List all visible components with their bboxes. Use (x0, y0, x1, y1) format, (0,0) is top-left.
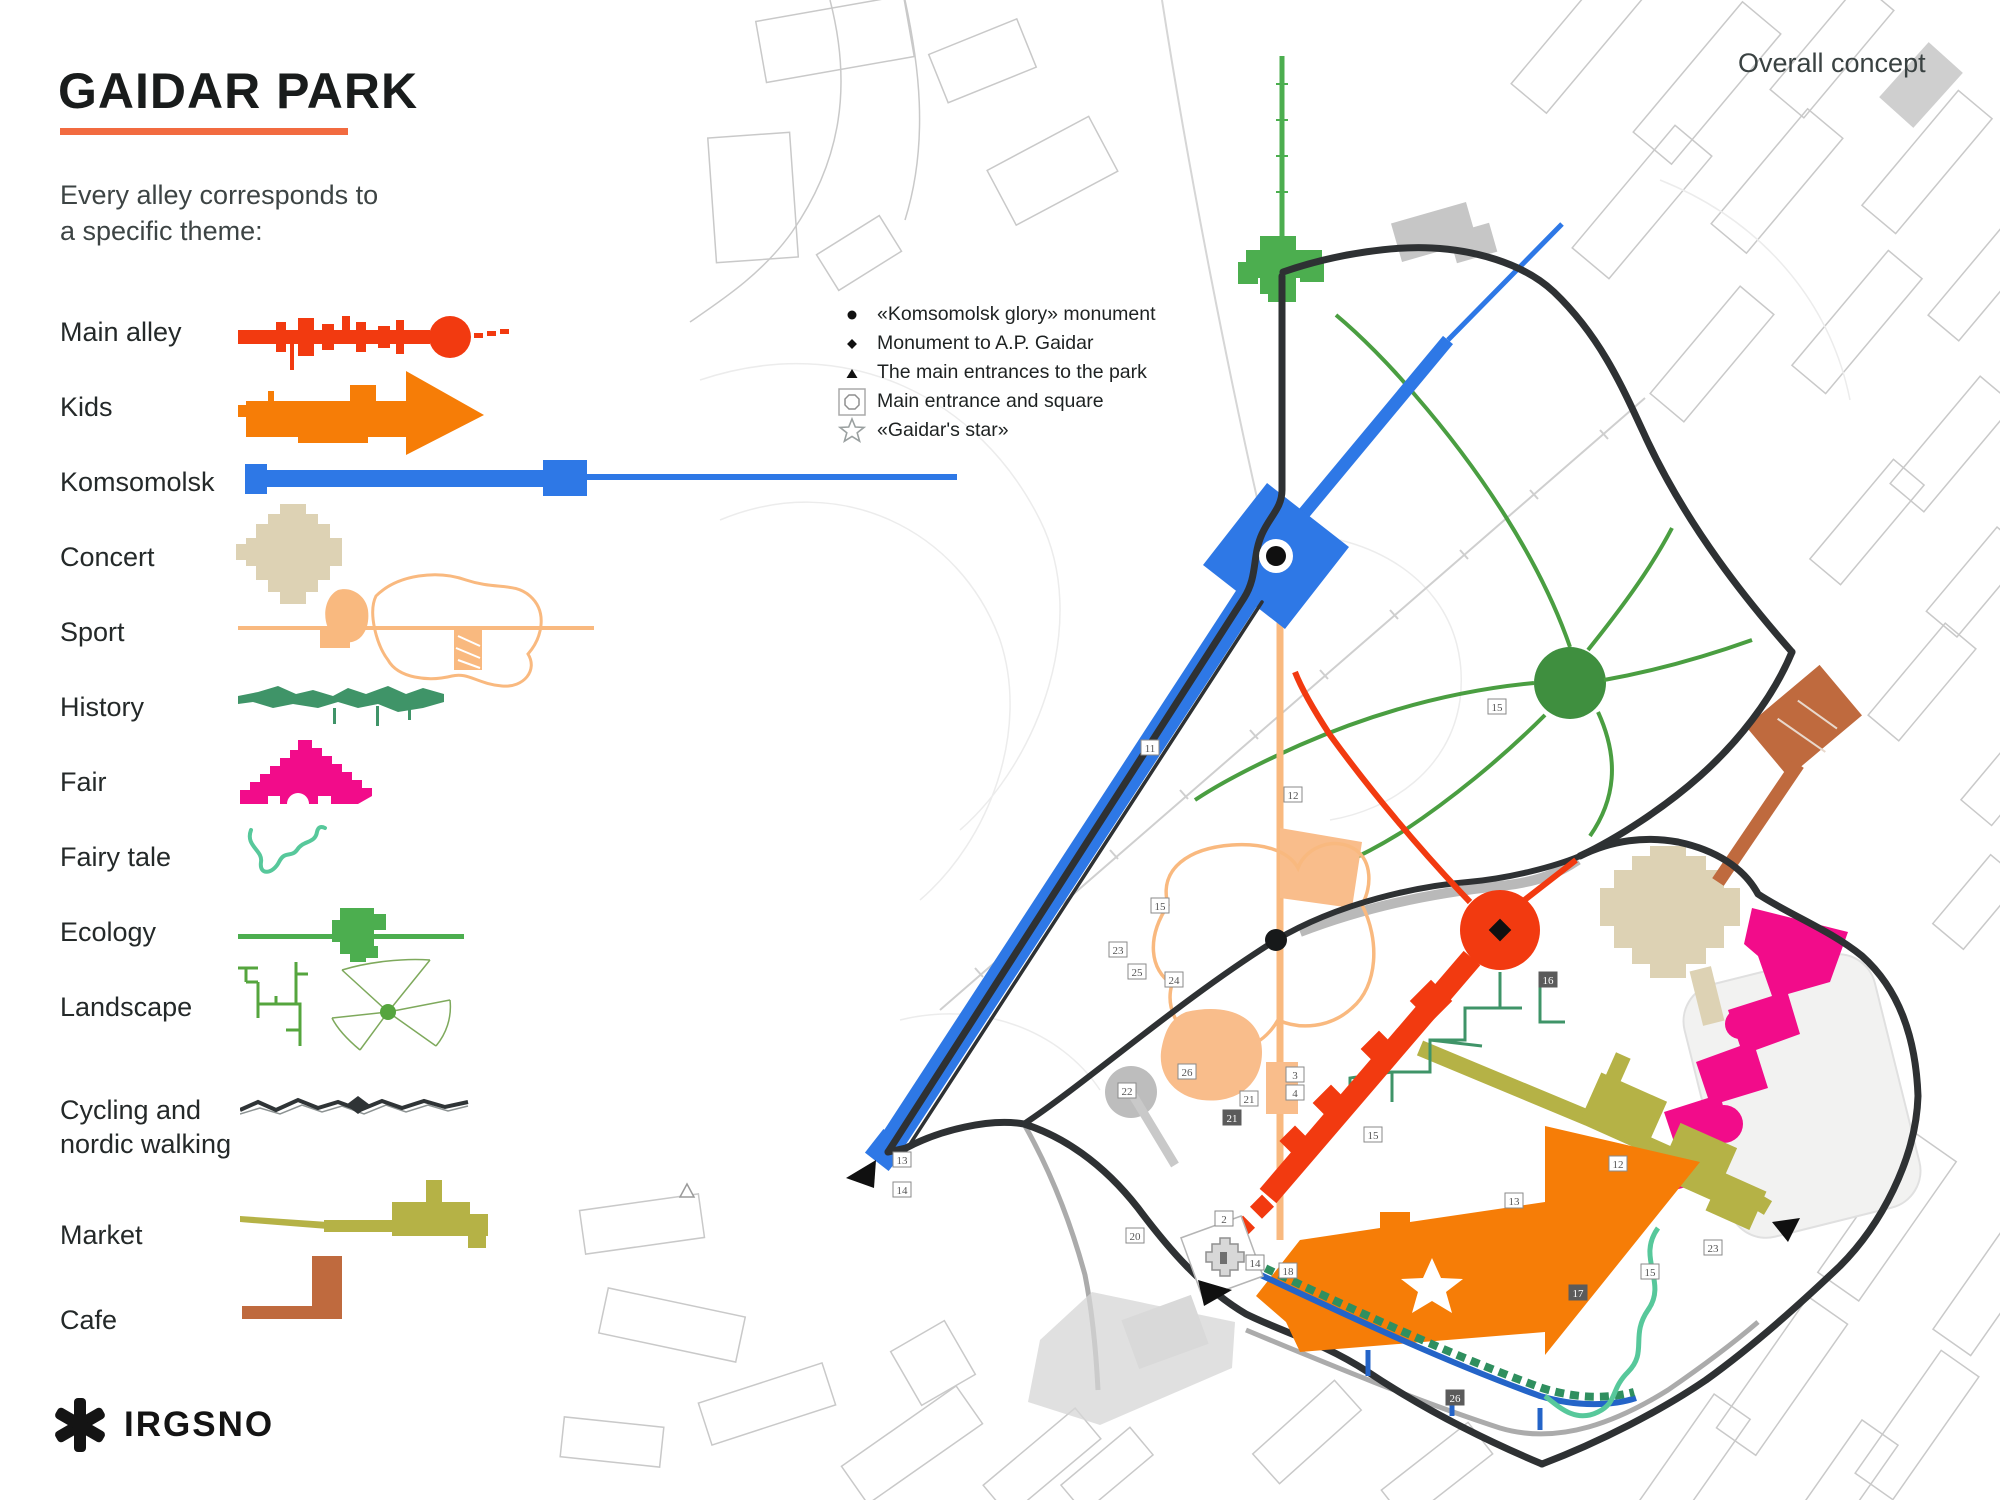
svg-text:23: 23 (1708, 1243, 1720, 1255)
page-title: GAIDAR PARK (58, 62, 418, 120)
legend-label-fairy-tale: Fairy tale (60, 841, 171, 875)
svg-text:3: 3 (1292, 1070, 1298, 1082)
svg-text:21: 21 (1227, 1113, 1238, 1125)
entrance-triangle-outline (680, 1184, 694, 1197)
map-marker-legend: «Komsomolsk glory» monument Monument to … (836, 300, 1196, 445)
svg-text:13: 13 (897, 1155, 909, 1167)
legend-label-main-alley: Main alley (60, 316, 182, 350)
landscape-icon (238, 952, 466, 1067)
map-legend-row: «Gaidar's star» (836, 416, 1196, 445)
svg-text:18: 18 (1283, 1266, 1295, 1278)
legend-label-market: Market (60, 1219, 143, 1253)
svg-text:15: 15 (1155, 901, 1167, 913)
kids-alley (1256, 1126, 1700, 1355)
svg-text:11: 11 (1145, 743, 1156, 755)
cafe-alley (1718, 665, 1862, 882)
svg-text:12: 12 (1613, 1159, 1624, 1171)
map-legend-row: Main entrance and square (836, 387, 1196, 416)
asterisk-icon (52, 1396, 108, 1454)
legend-label-komsomolsk: Komsomolsk (60, 466, 215, 500)
entrance-street (1028, 1292, 1235, 1425)
legend-label-history: History (60, 691, 144, 725)
komsomolsk-icon (245, 452, 960, 502)
fairy-tale-icon (245, 822, 340, 887)
kids-icon (238, 355, 488, 455)
svg-text:14: 14 (1250, 1258, 1262, 1270)
legend-label-kids: Kids (60, 391, 113, 425)
subtitle: Every alley corresponds to a specific th… (60, 178, 378, 249)
view-title: Overall concept (1738, 48, 1926, 79)
legend-label-sport: Sport (60, 616, 125, 650)
cafe-icon (242, 1248, 347, 1328)
svg-text:12: 12 (1288, 790, 1299, 802)
legend-label-cafe: Cafe (60, 1304, 117, 1338)
komsomolsk-glory-monument (1259, 539, 1293, 573)
svg-text:15: 15 (1645, 1267, 1657, 1279)
legend-label-fair: Fair (60, 766, 107, 800)
svg-text:15: 15 (1492, 702, 1504, 714)
legend-label-landscape: Landscape (60, 991, 192, 1025)
svg-text:16: 16 (1543, 975, 1555, 987)
legend-label-ecology: Ecology (60, 916, 156, 950)
cycling-icon (240, 1088, 470, 1128)
svg-text:20: 20 (1130, 1231, 1142, 1243)
brand-logo: IRGSNO (52, 1396, 274, 1454)
svg-text:2: 2 (1221, 1214, 1227, 1226)
triangle-icon (845, 367, 859, 379)
svg-text:21: 21 (1244, 1094, 1255, 1106)
map-legend-row: The main entrances to the park (836, 358, 1196, 387)
legend-label-cycling: Cycling and nordic walking (60, 1094, 231, 1162)
svg-text:23: 23 (1113, 945, 1125, 957)
svg-text:13: 13 (1509, 1196, 1521, 1208)
brand-name: IRGSNO (124, 1405, 274, 1445)
fair-icon (240, 726, 390, 816)
title-underline (60, 128, 348, 135)
gray-plaza (1105, 1066, 1175, 1165)
svg-text:14: 14 (897, 1185, 909, 1197)
svg-text:26: 26 (1450, 1393, 1462, 1405)
dot-icon (846, 309, 858, 321)
diamond-icon (845, 337, 859, 351)
svg-text:22: 22 (1122, 1086, 1133, 1098)
svg-text:26: 26 (1182, 1067, 1194, 1079)
map-legend-row: «Komsomolsk glory» monument (836, 300, 1196, 329)
junction-dot (1265, 929, 1287, 951)
sport-icon (238, 566, 598, 696)
svg-text:15: 15 (1368, 1130, 1380, 1142)
map-legend-row: Monument to A.P. Gaidar (836, 329, 1196, 358)
svg-text:24: 24 (1169, 975, 1181, 987)
legend-label-concert: Concert (60, 541, 155, 575)
svg-text:25: 25 (1132, 967, 1144, 979)
svg-text:4: 4 (1292, 1088, 1298, 1100)
star-icon (837, 416, 867, 446)
entrance-square-icon (837, 387, 867, 417)
svg-text:17: 17 (1573, 1288, 1585, 1300)
